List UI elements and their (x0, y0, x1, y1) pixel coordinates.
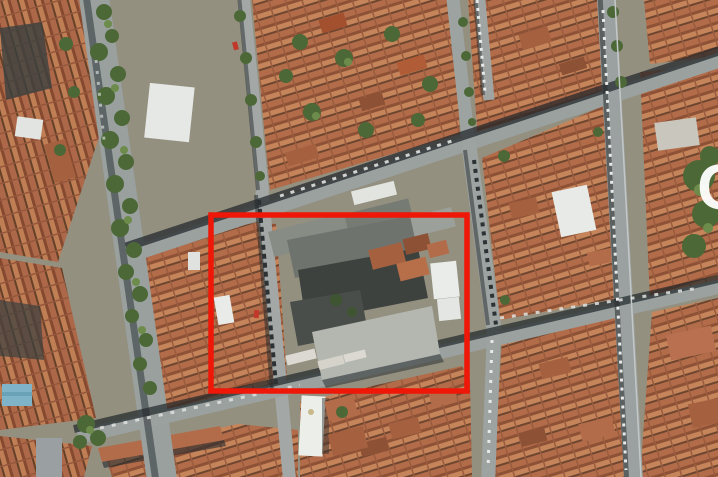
aerial-map-viewport[interactable]: G (0, 0, 718, 477)
watermark-letter-g: G (697, 151, 718, 223)
white-building (430, 261, 460, 300)
aerial-imagery: G (0, 0, 718, 477)
block-bottom-right-2 (640, 298, 718, 477)
